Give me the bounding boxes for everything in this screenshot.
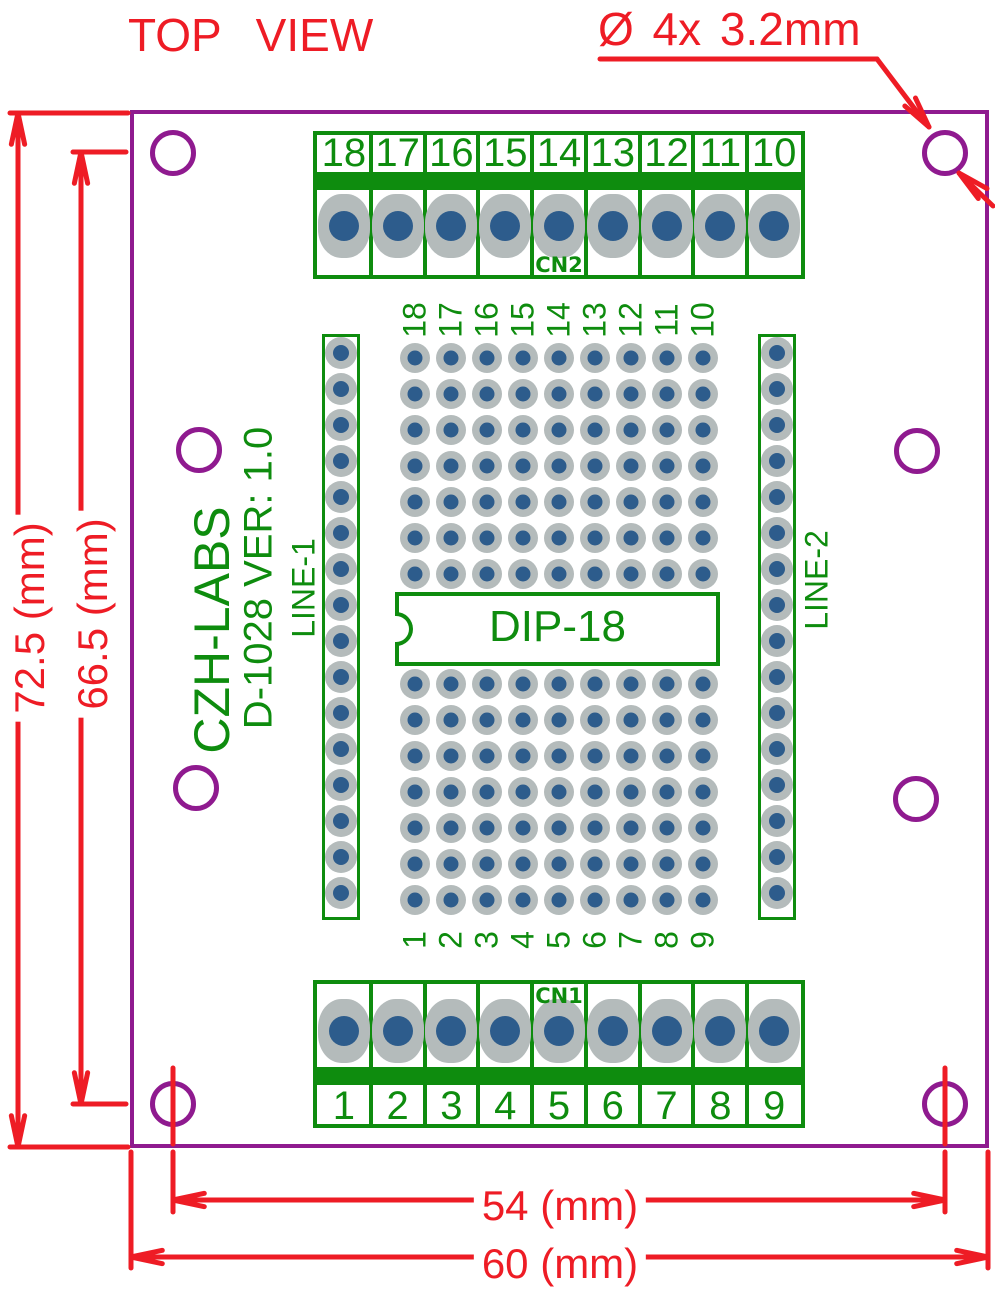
proto-pad (688, 415, 718, 445)
terminal-pad (587, 194, 639, 258)
strip-pad-hole (333, 525, 349, 541)
proto-pad (544, 559, 574, 589)
strip-pad (761, 733, 793, 765)
proto-pad (544, 705, 574, 735)
proto-pad (472, 669, 502, 699)
strip-pad (325, 337, 357, 369)
terminal-pad-hole (598, 211, 628, 241)
dim-board-height: 72.5 (mm) (5, 514, 55, 721)
proto-pad (508, 451, 538, 481)
proto-pad (436, 487, 466, 517)
proto-pad-hole (516, 857, 531, 872)
proto-pad-hole (552, 459, 567, 474)
proto-pad (544, 343, 574, 373)
strip-pad-hole (333, 849, 349, 865)
proto-pad-hole (624, 387, 639, 402)
proto-pad (544, 487, 574, 517)
proto-pad-hole (696, 423, 711, 438)
strip-pad-hole (333, 417, 349, 433)
proto-pad (688, 777, 718, 807)
proto-pad-hole (444, 567, 459, 582)
mid-mounting-hole (894, 428, 940, 474)
terminal-pad-hole (598, 1016, 628, 1046)
strip-pad-hole (769, 453, 785, 469)
strip-pad-hole (769, 741, 785, 757)
terminal-pad (372, 999, 424, 1063)
proto-pad-hole (624, 351, 639, 366)
terminal-pin-number: 11 (693, 132, 747, 174)
terminal-pad (318, 999, 370, 1063)
proto-pad-hole (696, 677, 711, 692)
proto-pad-hole (624, 893, 639, 908)
proto-pad-hole (696, 713, 711, 728)
terminal-pin-number: 7 (640, 1085, 694, 1127)
proto-pad (580, 379, 610, 409)
proto-pad (616, 559, 646, 589)
proto-pad-hole (516, 567, 531, 582)
terminal-pad-hole (490, 1016, 520, 1046)
grid-col-label-bottom: 4 (505, 931, 542, 949)
proto-pad (580, 523, 610, 553)
proto-pad-hole (660, 387, 675, 402)
proto-pad-hole (660, 749, 675, 764)
proto-pad-hole (696, 857, 711, 872)
proto-pad-hole (624, 459, 639, 474)
proto-pad-hole (480, 387, 495, 402)
proto-pad (472, 415, 502, 445)
strip-pad (761, 805, 793, 837)
terminal-pin-number: 12 (640, 132, 694, 174)
silkscreen-model: D-1028 VER: 1.0 (237, 427, 282, 729)
proto-pad-hole (444, 893, 459, 908)
proto-pad-hole (552, 749, 567, 764)
strip-pad (761, 481, 793, 513)
proto-pad-hole (552, 857, 567, 872)
grid-col-label-bottom: 1 (397, 931, 434, 949)
proto-pad-hole (516, 387, 531, 402)
strip-pad-hole (333, 453, 349, 469)
connector-label-cn1: CN1 (317, 984, 801, 1008)
proto-pad (472, 451, 502, 481)
proto-pad-hole (696, 821, 711, 836)
proto-pad (688, 669, 718, 699)
terminal-pad-hole (383, 1016, 413, 1046)
proto-pad-hole (516, 351, 531, 366)
proto-pad (580, 343, 610, 373)
strip-pad-hole (333, 777, 349, 793)
terminal-pad-hole (705, 211, 735, 241)
proto-pad-hole (444, 677, 459, 692)
proto-pad (400, 343, 430, 373)
terminal-pad (641, 999, 693, 1063)
proto-pad-hole (480, 531, 495, 546)
proto-pad-hole (408, 531, 423, 546)
proto-pad (580, 705, 610, 735)
proto-pad-hole (588, 857, 603, 872)
terminal-pad-hole (759, 1016, 789, 1046)
proto-pad (472, 523, 502, 553)
proto-pad (400, 849, 430, 879)
strip-pad-hole (333, 741, 349, 757)
proto-pad (400, 705, 430, 735)
strip-pad-hole (769, 777, 785, 793)
proto-pad (688, 523, 718, 553)
proto-pad (616, 741, 646, 771)
strip-pad-hole (769, 345, 785, 361)
proto-pad (508, 523, 538, 553)
proto-pad (688, 343, 718, 373)
proto-pad (544, 523, 574, 553)
proto-pad (616, 343, 646, 373)
terminal-pin-number: 1 (317, 1085, 371, 1127)
strip-pad (761, 337, 793, 369)
grid-col-label-bottom: 5 (541, 931, 578, 949)
proto-pad-hole (408, 459, 423, 474)
strip-pad (761, 841, 793, 873)
terminal-pin-number: 10 (747, 132, 801, 174)
grid-col-label-bottom: 7 (613, 931, 650, 949)
proto-pad-hole (552, 785, 567, 800)
grid-col-label-top: 17 (433, 302, 470, 338)
proto-pad-hole (696, 893, 711, 908)
grid-col-label-top: 14 (541, 302, 578, 338)
strip-pad (325, 553, 357, 585)
proto-pad-hole (516, 677, 531, 692)
proto-pad (508, 849, 538, 879)
proto-pad (508, 741, 538, 771)
dip18-pin1-notch (395, 612, 413, 646)
terminal-pad (694, 194, 746, 258)
strip-pad (325, 733, 357, 765)
proto-pad-hole (696, 567, 711, 582)
terminal-pad-hole (329, 211, 359, 241)
strip-pad (325, 481, 357, 513)
proto-pad (544, 451, 574, 481)
terminal-pad (748, 999, 800, 1063)
grid-col-label-top: 16 (469, 302, 506, 338)
proto-pad-hole (408, 567, 423, 582)
proto-pad (436, 415, 466, 445)
strip-pad (325, 769, 357, 801)
proto-pad-hole (516, 749, 531, 764)
terminal-pad (372, 194, 424, 258)
corner-mounting-hole (922, 130, 968, 176)
proto-pad (652, 885, 682, 915)
proto-pad (436, 777, 466, 807)
proto-pad (436, 669, 466, 699)
terminal-pin-number: 16 (425, 132, 479, 174)
terminal-pad-hole (490, 211, 520, 241)
proto-pad (544, 813, 574, 843)
proto-pad (400, 669, 430, 699)
proto-pad-hole (624, 785, 639, 800)
proto-pad-hole (516, 531, 531, 546)
strip-pad (761, 517, 793, 549)
proto-pad (400, 379, 430, 409)
proto-pad-hole (552, 821, 567, 836)
proto-pad-hole (588, 893, 603, 908)
strip-pad (325, 625, 357, 657)
proto-pad (652, 523, 682, 553)
proto-pad-hole (408, 857, 423, 872)
proto-pad (400, 559, 430, 589)
proto-pad (472, 813, 502, 843)
proto-pad (580, 813, 610, 843)
proto-pad-hole (480, 893, 495, 908)
terminal-pad (479, 999, 531, 1063)
proto-pad-hole (480, 567, 495, 582)
strip-pad-hole (333, 381, 349, 397)
terminal-pin-number: 9 (747, 1085, 801, 1127)
proto-pad (652, 777, 682, 807)
line1-label: LINE-1 (286, 538, 323, 638)
proto-pad (436, 523, 466, 553)
terminal-pin-number: 4 (478, 1085, 532, 1127)
proto-pad-hole (588, 495, 603, 510)
strip-pad (325, 805, 357, 837)
proto-pad (400, 777, 430, 807)
corner-mounting-hole (922, 1081, 968, 1127)
proto-pad-hole (516, 423, 531, 438)
proto-pad-hole (552, 351, 567, 366)
proto-pad (616, 379, 646, 409)
proto-pad-hole (444, 387, 459, 402)
proto-pad (508, 415, 538, 445)
strip-pad-hole (769, 705, 785, 721)
proto-pad-hole (660, 677, 675, 692)
pcb-top-view-diagram: TOP VIEW Ø 4x 3.2mm 72.5 (mm) 66.5 (mm) … (0, 0, 995, 1295)
proto-pad (652, 705, 682, 735)
strip-pad-hole (769, 669, 785, 685)
proto-pad-hole (480, 749, 495, 764)
line2-label: LINE-2 (799, 530, 836, 630)
proto-pad (472, 885, 502, 915)
terminal-pin-number: 18 (317, 132, 371, 174)
proto-pad-hole (516, 893, 531, 908)
proto-pad (616, 487, 646, 517)
proto-pad (436, 885, 466, 915)
proto-pad-hole (588, 785, 603, 800)
dim-hole-span-width: 54 (mm) (474, 1181, 646, 1231)
proto-pad (508, 669, 538, 699)
dim-hole-span-height: 66.5 (mm) (68, 510, 118, 717)
proto-pad-hole (480, 423, 495, 438)
proto-pad-hole (552, 495, 567, 510)
strip-pad (761, 625, 793, 657)
grid-col-label-bottom: 6 (577, 931, 614, 949)
proto-pad-hole (588, 713, 603, 728)
terminal-pad-hole (544, 1016, 574, 1046)
proto-pad-hole (624, 821, 639, 836)
terminal-pad-hole (544, 211, 574, 241)
proto-pad (436, 379, 466, 409)
proto-pad-hole (660, 495, 675, 510)
proto-pad (652, 343, 682, 373)
proto-pad (400, 741, 430, 771)
proto-pad (472, 705, 502, 735)
strip-pad-hole (769, 813, 785, 829)
terminal-pin-number: 3 (425, 1085, 479, 1127)
strip-pad (325, 373, 357, 405)
terminal-pad (587, 999, 639, 1063)
proto-pad (436, 343, 466, 373)
proto-pad (652, 813, 682, 843)
proto-pad (400, 487, 430, 517)
proto-pad (580, 415, 610, 445)
proto-pad-hole (516, 821, 531, 836)
proto-pad-hole (588, 749, 603, 764)
corner-mounting-hole (150, 1081, 196, 1127)
proto-pad (400, 885, 430, 915)
proto-pad (508, 559, 538, 589)
terminal-pin-number: 5 (532, 1085, 586, 1127)
proto-pad-hole (624, 857, 639, 872)
proto-pad (688, 451, 718, 481)
proto-pad-hole (480, 713, 495, 728)
mid-mounting-hole (173, 765, 219, 811)
terminal-pad (641, 194, 693, 258)
proto-pad-hole (444, 423, 459, 438)
proto-pad (616, 813, 646, 843)
proto-pad (472, 487, 502, 517)
proto-pad-hole (444, 351, 459, 366)
proto-pad (652, 669, 682, 699)
strip-pad-hole (769, 885, 785, 901)
proto-pad (652, 379, 682, 409)
terminal-pad-hole (652, 211, 682, 241)
proto-pad (688, 741, 718, 771)
grid-col-label-top: 18 (397, 302, 434, 338)
proto-pad (472, 849, 502, 879)
terminal-block-cn2: 181716151413121110CN2 (313, 131, 805, 279)
proto-pad-hole (408, 713, 423, 728)
dip18-outline: DIP-18 (395, 592, 720, 666)
proto-pad (472, 777, 502, 807)
proto-pad (616, 451, 646, 481)
proto-pad (508, 705, 538, 735)
proto-pad (616, 849, 646, 879)
proto-pad-hole (552, 893, 567, 908)
proto-pad (688, 813, 718, 843)
strip-pad (761, 589, 793, 621)
proto-pad (580, 741, 610, 771)
proto-pad-hole (588, 677, 603, 692)
strip-pad-hole (769, 489, 785, 505)
terminal-pad-hole (436, 211, 466, 241)
terminal-pad-hole (652, 1016, 682, 1046)
proto-pad-hole (588, 351, 603, 366)
proto-pad-hole (480, 495, 495, 510)
proto-pad-hole (408, 677, 423, 692)
terminal-pad-hole (383, 211, 413, 241)
strip-pad (761, 445, 793, 477)
proto-pad-hole (444, 531, 459, 546)
proto-pad (688, 379, 718, 409)
proto-pad (472, 741, 502, 771)
proto-pad-hole (444, 713, 459, 728)
proto-pad-hole (624, 423, 639, 438)
strip-pad-hole (333, 345, 349, 361)
proto-pad (400, 451, 430, 481)
proto-pad-hole (552, 677, 567, 692)
grid-col-label-bottom: 3 (469, 931, 506, 949)
proto-pad-hole (588, 387, 603, 402)
grid-col-label-top: 12 (613, 302, 650, 338)
terminal-pin-number: 2 (371, 1085, 425, 1127)
proto-pad-hole (480, 459, 495, 474)
strip-pad (325, 517, 357, 549)
title: TOP VIEW (128, 8, 373, 62)
proto-pad-hole (408, 749, 423, 764)
proto-pad-hole (660, 893, 675, 908)
proto-pad-hole (696, 459, 711, 474)
proto-pad-hole (660, 857, 675, 872)
proto-pad (508, 487, 538, 517)
terminal-block-cn1: 123456789CN1 (313, 980, 805, 1128)
strip-pad (761, 661, 793, 693)
proto-pad (472, 559, 502, 589)
strip-pad-hole (333, 489, 349, 505)
terminal-pad (318, 194, 370, 258)
proto-pad-hole (444, 785, 459, 800)
proto-pad-hole (660, 531, 675, 546)
dim-board-width: 60 (mm) (474, 1239, 646, 1289)
strip-pad-hole (769, 561, 785, 577)
proto-pad-hole (660, 459, 675, 474)
terminal-pad (425, 194, 477, 258)
proto-pad (580, 487, 610, 517)
proto-pad-hole (624, 531, 639, 546)
proto-pad (652, 849, 682, 879)
proto-pad-hole (408, 821, 423, 836)
grid-col-label-top: 13 (577, 302, 614, 338)
terminal-pad-hole (759, 211, 789, 241)
strip-pad (761, 769, 793, 801)
strip-pad-hole (333, 597, 349, 613)
strip-pad (325, 409, 357, 441)
proto-pad-hole (444, 749, 459, 764)
proto-pad (688, 487, 718, 517)
proto-pad-hole (408, 423, 423, 438)
proto-pad (652, 741, 682, 771)
proto-pad-hole (516, 495, 531, 510)
strip-pad (761, 697, 793, 729)
connector-label-cn2: CN2 (317, 253, 801, 277)
grid-col-label-top: 11 (649, 303, 686, 336)
proto-pad-hole (444, 459, 459, 474)
proto-pad (580, 669, 610, 699)
proto-pad-hole (408, 495, 423, 510)
terminal-pad (694, 999, 746, 1063)
proto-pad (616, 523, 646, 553)
proto-pad (652, 559, 682, 589)
proto-pad (544, 415, 574, 445)
proto-pad-hole (696, 531, 711, 546)
terminal-pin-number: 6 (586, 1085, 640, 1127)
strip-pad-hole (333, 813, 349, 829)
proto-pad-hole (552, 567, 567, 582)
terminal-pad (748, 194, 800, 258)
proto-pad-hole (696, 785, 711, 800)
strip-pad (761, 553, 793, 585)
strip-pad (325, 661, 357, 693)
terminal-pin-number: 14 (532, 132, 586, 174)
proto-pad-hole (660, 785, 675, 800)
strip-pad-hole (769, 597, 785, 613)
proto-pad-hole (696, 749, 711, 764)
terminal-pad (479, 194, 531, 258)
proto-pad-hole (552, 423, 567, 438)
